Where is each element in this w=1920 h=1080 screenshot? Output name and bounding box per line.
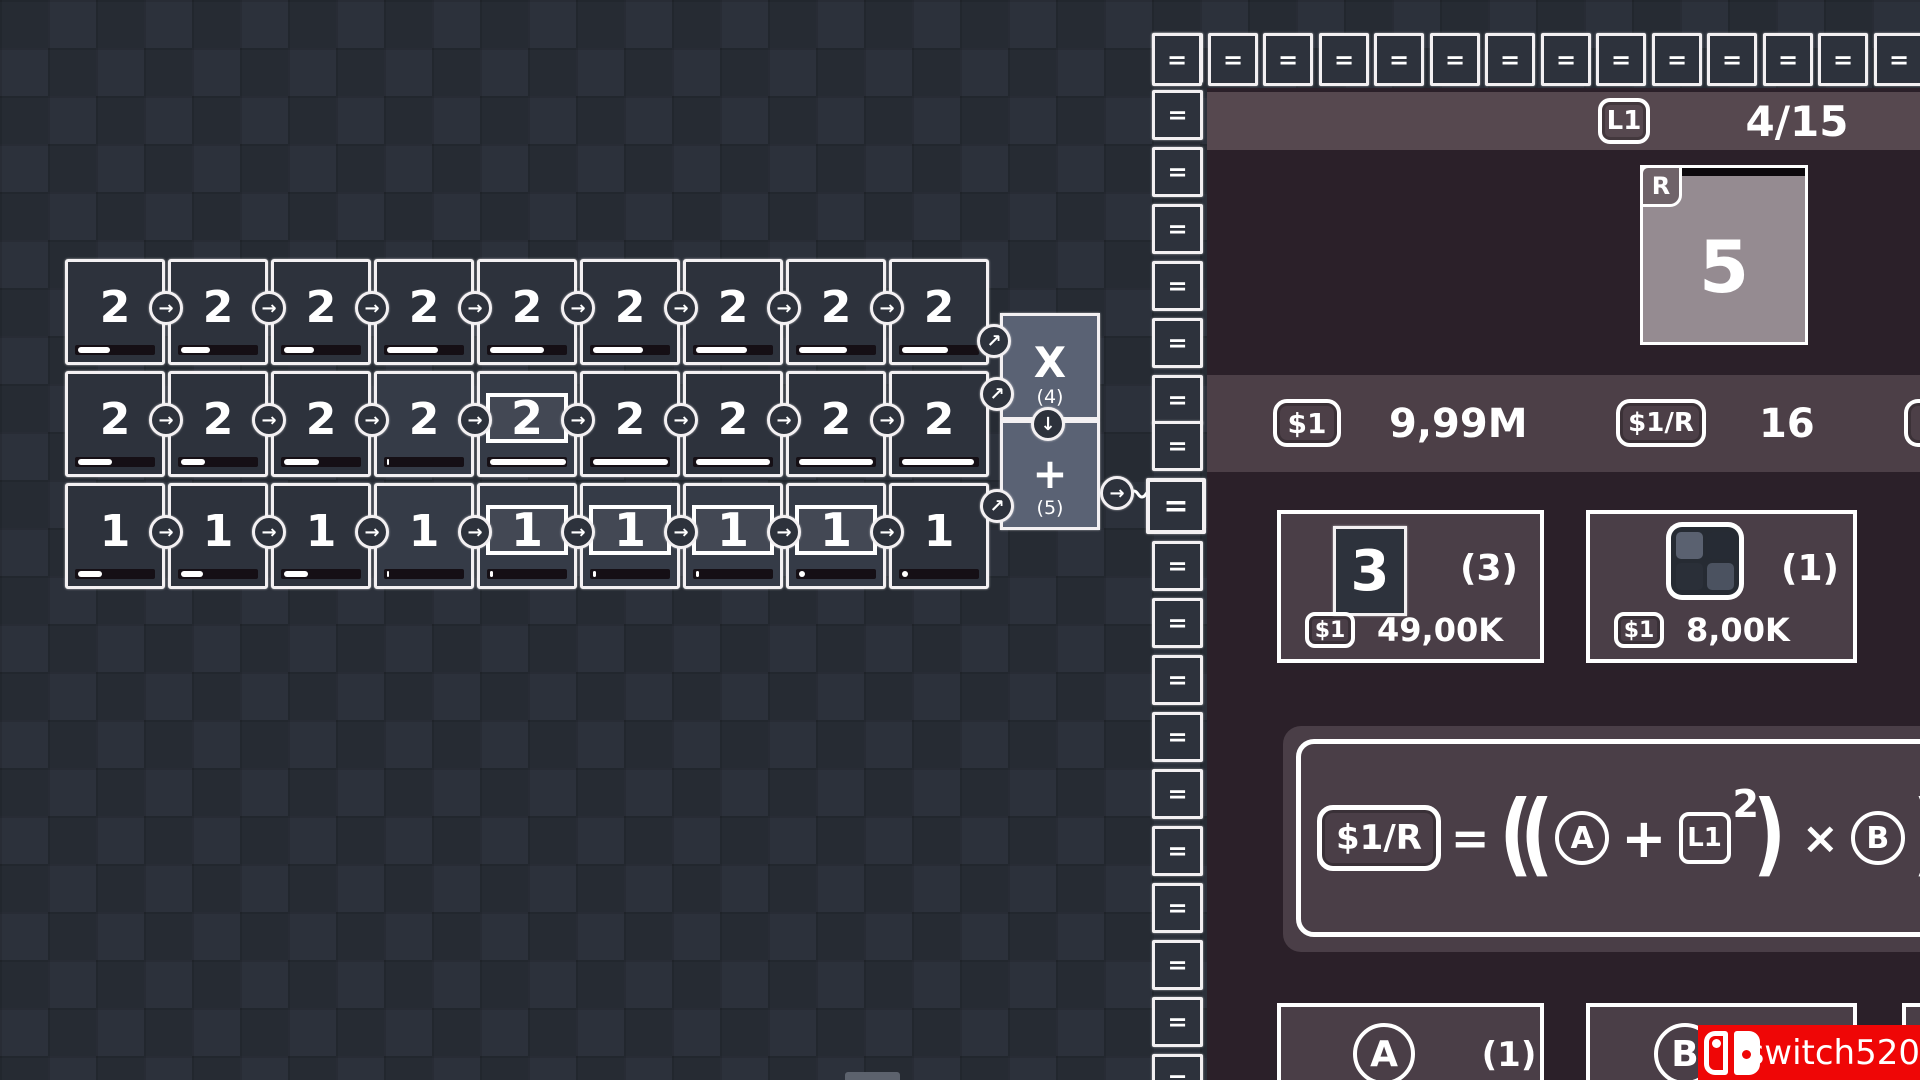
cell-progress-track (75, 457, 155, 467)
arrow-diagonal-connector[interactable]: ↗ (980, 489, 1014, 523)
cell-value: 2 (203, 282, 234, 333)
formula-close-paren: ) (1753, 788, 1790, 878)
arrow-right-connector[interactable]: → (252, 515, 286, 549)
cell-value: 1 (924, 506, 955, 557)
arrow-right-connector[interactable]: → (458, 515, 492, 549)
cell-progress-track (899, 569, 979, 579)
cell-progress-fill (387, 459, 389, 465)
sell-slot[interactable]: = (1152, 421, 1203, 471)
sell-slot[interactable]: = (1152, 598, 1203, 648)
switch-logo-icon (1704, 1031, 1741, 1075)
cell-progress-fill (696, 347, 747, 353)
cell-value: 1 (203, 506, 234, 557)
reward-badge: R (1640, 165, 1682, 207)
cell-progress-track (899, 457, 979, 467)
shop-card-splitter[interactable]: (1) $1 8,00K (1586, 510, 1857, 663)
variable-a-icon: A (1555, 811, 1609, 865)
arrow-right-connector[interactable]: → (458, 291, 492, 325)
cell-value: 2 (512, 282, 543, 333)
multiply-count: (4) (1003, 386, 1097, 408)
upgrade-count: (1) (1459, 1035, 1559, 1075)
cell-progress-track (693, 569, 773, 579)
arrow-right-connector[interactable]: → (767, 291, 801, 325)
sell-slot[interactable]: = (1430, 33, 1480, 86)
cell-value: 2 (274, 386, 368, 452)
arrow-down-connector[interactable]: ↓ (1031, 407, 1065, 441)
cell-progress-track (796, 457, 876, 467)
cell-progress-fill (799, 347, 847, 353)
cell-value: 2 (583, 386, 677, 452)
rate-value: 16 (1759, 375, 1815, 472)
arrow-right-connector[interactable]: → (149, 515, 183, 549)
cell-progress-fill (593, 571, 596, 577)
cell-progress-track (178, 569, 258, 579)
cell-value: 2 (100, 394, 131, 445)
sell-slot[interactable]: = (1263, 33, 1313, 86)
cell-progress-track (796, 569, 876, 579)
sell-slot[interactable]: = (1319, 33, 1369, 86)
grid-cell[interactable]: 2 (889, 371, 989, 477)
reward-value: 5 (1643, 202, 1805, 332)
cell-value: 2 (68, 386, 162, 452)
arrow-right-connector[interactable]: → (355, 515, 389, 549)
cell-progress-fill (490, 459, 566, 465)
price-row: $1 49,00K (1305, 611, 1503, 649)
cell-progress-fill (593, 459, 668, 465)
panel-header-bar: L1 4/15 (1207, 92, 1920, 150)
arrow-right-connector[interactable]: → (664, 515, 698, 549)
cell-value: 1 (892, 498, 986, 564)
game-stage: L1 4/15 R 5 $1 9,99M $1/R 16 3 (3) $1 49… (0, 0, 1920, 1080)
arrow-right-connector[interactable]: → (561, 403, 595, 437)
arrow-right-connector[interactable]: → (767, 403, 801, 437)
cell-selection-box: 2 (486, 393, 568, 443)
formula-result-badge: $1/R (1317, 805, 1441, 871)
cell-progress-track (281, 569, 361, 579)
arrow-diagonal-connector[interactable]: ↗ (977, 324, 1011, 358)
number3-tile: 3 (1333, 526, 1407, 616)
cell-progress-track (384, 569, 464, 579)
cell-value: 2 (377, 274, 471, 340)
arrow-right-connector[interactable]: → (1100, 476, 1134, 510)
watermark-text: switch520 (1747, 1033, 1920, 1073)
cell-progress-fill (902, 571, 908, 577)
formula-close-paren2: ) (1913, 788, 1920, 878)
arrow-right-connector[interactable]: → (870, 291, 904, 325)
arrow-right-connector[interactable]: → (561, 291, 595, 325)
cell-value: 2 (892, 274, 986, 340)
cell-value: 1 (306, 506, 337, 557)
arrow-right-connector[interactable]: → (149, 403, 183, 437)
cell-value: 2 (171, 274, 265, 340)
level-token: L1 (1679, 812, 1731, 864)
cell-value: 2 (718, 282, 749, 333)
cell-progress-fill (696, 571, 699, 577)
sell-slot[interactable]: = (1818, 33, 1868, 86)
cell-value: 1 (511, 503, 543, 557)
cell-progress-track (590, 345, 670, 355)
cell-progress-fill (78, 571, 102, 577)
level-progress-counter: 4/15 (1727, 92, 1867, 150)
cell-progress-track (487, 345, 567, 355)
cell-progress-fill (799, 459, 873, 465)
cell-value: 1 (171, 498, 265, 564)
cell-value: 2 (789, 274, 883, 340)
shop-card-number3[interactable]: 3 (3) $1 49,00K (1277, 510, 1544, 663)
cell-progress-track (487, 457, 567, 467)
cell-value: 2 (718, 394, 749, 445)
cell-progress-track (590, 457, 670, 467)
cell-progress-fill (284, 459, 319, 465)
currency-badge-cut (1904, 399, 1920, 447)
sell-slot[interactable]: = (1485, 33, 1535, 86)
currency-bar: $1 9,99M $1/R 16 (1207, 375, 1920, 472)
cell-value: 1 (100, 506, 131, 557)
sell-slot[interactable]: = (1874, 33, 1920, 86)
cell-value: 2 (306, 394, 337, 445)
price-currency-badge: $1 (1305, 612, 1355, 648)
cell-value: 2 (409, 282, 440, 333)
sell-slot[interactable]: = (1152, 541, 1203, 591)
cell-progress-track (384, 345, 464, 355)
cell-progress-track (178, 457, 258, 467)
arrow-right-connector[interactable]: → (870, 403, 904, 437)
cell-value: 2 (924, 282, 955, 333)
cell-value: 2 (583, 274, 677, 340)
cell-progress-track (487, 569, 567, 579)
cell-progress-fill (181, 459, 205, 465)
cell-value: 2 (203, 394, 234, 445)
cell-progress-fill (387, 571, 389, 577)
sell-slot[interactable]: = (1652, 33, 1702, 86)
sell-slot[interactable]: = (1152, 147, 1203, 197)
arrow-diagonal-connector[interactable]: ↗ (980, 377, 1014, 411)
cell-selection-box: 1 (486, 505, 568, 555)
price-row: $1 8,00K (1614, 611, 1790, 649)
price-value: 49,00K (1377, 611, 1503, 649)
arrow-right-connector[interactable]: → (458, 403, 492, 437)
cell-value: 2 (100, 282, 131, 333)
arrow-right-connector[interactable]: → (252, 403, 286, 437)
money-badge: $1 (1273, 399, 1341, 447)
cell-progress-track (281, 345, 361, 355)
cell-progress-track (590, 569, 670, 579)
cell-value: 2 (924, 394, 955, 445)
upgrade-card-a[interactable]: A (1) (1277, 1003, 1544, 1080)
grid-2x2-icon (1666, 522, 1744, 600)
sell-slot[interactable]: = (1152, 1054, 1203, 1080)
arrow-right-connector[interactable]: → (355, 403, 389, 437)
formula-times: × (1802, 813, 1839, 864)
cell-value: 1 (377, 498, 471, 564)
cell-value: 1 (274, 498, 368, 564)
multiply-operator-block[interactable]: X(4) (1000, 313, 1100, 420)
cell-value: 1 (717, 503, 749, 557)
cell-progress-fill (799, 571, 805, 577)
cell-progress-fill (284, 347, 314, 353)
sell-slot[interactable]: = (1152, 90, 1203, 140)
sell-slot[interactable]: = (1374, 33, 1424, 86)
cell-progress-track (384, 457, 464, 467)
arrow-right-connector[interactable]: → (561, 515, 595, 549)
cell-progress-track (796, 345, 876, 355)
price-value: 8,00K (1686, 611, 1790, 649)
cell-value: 2 (409, 394, 440, 445)
cell-value: 2 (274, 274, 368, 340)
level-badge: L1 (1598, 98, 1650, 144)
cell-value: 2 (306, 282, 337, 333)
sell-slot[interactable]: = (1152, 204, 1203, 254)
sell-slot[interactable]: = (1707, 33, 1757, 86)
cell-progress-fill (181, 571, 203, 577)
cell-value: 2 (511, 391, 543, 445)
arrow-right-connector[interactable]: → (767, 515, 801, 549)
cell-progress-track (75, 345, 155, 355)
cell-value: 2 (789, 386, 883, 452)
money-value: 9,99M (1389, 375, 1528, 472)
cell-progress-track (899, 345, 979, 355)
cell-value: 2 (171, 386, 265, 452)
sell-slot[interactable]: = (1152, 375, 1203, 425)
cell-progress-fill (593, 347, 643, 353)
sell-slot[interactable]: = (1152, 940, 1203, 990)
cell-progress-fill (387, 347, 438, 353)
sell-slot[interactable]: = (1763, 33, 1813, 86)
sell-slot[interactable]: = (1152, 261, 1203, 311)
cell-value: 2 (686, 386, 780, 452)
cell-value: 2 (377, 386, 471, 452)
arrow-right-connector[interactable]: → (355, 291, 389, 325)
sell-slot[interactable]: = (1152, 318, 1203, 368)
sell-slot[interactable]: = (1152, 655, 1203, 705)
cell-value: 2 (615, 394, 646, 445)
rate-badge: $1/R (1616, 399, 1706, 447)
cell-progress-track (281, 457, 361, 467)
cell-value: 2 (686, 274, 780, 340)
cell-progress-fill (490, 571, 493, 577)
cell-progress-fill (696, 459, 770, 465)
cell-value: 2 (480, 274, 574, 340)
sell-slot[interactable]: = (1541, 33, 1591, 86)
cell-progress-fill (490, 347, 544, 353)
formula-open-parens: (( (1499, 788, 1555, 878)
sell-slot[interactable]: = (1152, 712, 1203, 762)
cell-progress-fill (78, 459, 112, 465)
shop-card-count: (1) (1760, 548, 1860, 589)
cell-selection-box: 1 (589, 505, 671, 555)
sell-slot[interactable]: = (1152, 883, 1203, 933)
cell-value: 1 (409, 506, 440, 557)
cell-progress-track (693, 345, 773, 355)
variable-a-icon: A (1353, 1023, 1415, 1080)
add-symbol: + (1003, 453, 1097, 495)
watermark: switch520 (1698, 1025, 1920, 1080)
sell-slot[interactable]: = (1152, 997, 1203, 1047)
cell-progress-fill (181, 347, 210, 353)
cell-value: 2 (892, 386, 986, 452)
variable-b-icon: B (1851, 811, 1905, 865)
cell-value: 1 (68, 498, 162, 564)
formula-equals: = (1451, 811, 1490, 865)
cell-selection-box: 1 (795, 505, 877, 555)
cell-value: 1 (614, 503, 646, 557)
cell-progress-fill (78, 347, 110, 353)
grid-cell[interactable]: 1 (889, 483, 989, 589)
sell-slot[interactable]: = (1208, 33, 1258, 86)
price-currency-badge: $1 (1614, 612, 1664, 648)
shop-card-count: (3) (1439, 548, 1539, 589)
bottom-notch (845, 1072, 900, 1080)
sell-slot[interactable]: = (1596, 33, 1646, 86)
cell-progress-fill (284, 571, 308, 577)
sell-slot-connected[interactable]: = (1146, 478, 1206, 534)
arrow-right-connector[interactable]: → (664, 291, 698, 325)
sell-slot[interactable]: = (1152, 826, 1203, 876)
cell-progress-track (75, 569, 155, 579)
cell-value: 1 (820, 503, 852, 557)
cell-value: 2 (68, 274, 162, 340)
cell-selection-box: 1 (692, 505, 774, 555)
add-count: (5) (1003, 497, 1097, 519)
cell-progress-fill (902, 459, 974, 465)
sell-slot[interactable]: = (1152, 769, 1203, 819)
arrow-right-connector[interactable]: → (870, 515, 904, 549)
arrow-right-connector[interactable]: → (252, 291, 286, 325)
reward-card[interactable]: R 5 (1640, 165, 1808, 345)
multiply-symbol: X (1003, 342, 1097, 384)
arrow-right-connector[interactable]: → (149, 291, 183, 325)
arrow-right-connector[interactable]: → (664, 403, 698, 437)
sell-slot[interactable]: = (1152, 33, 1202, 86)
formula-plus: + (1621, 807, 1666, 870)
cell-value: 2 (821, 282, 852, 333)
grid-cell[interactable]: 2 (889, 259, 989, 365)
formula-box: $1/R = (( A + L1 2 ) × B ) (1296, 739, 1920, 937)
cell-value: 2 (821, 394, 852, 445)
cell-progress-track (693, 457, 773, 467)
cell-value: 2 (615, 282, 646, 333)
cell-progress-fill (902, 347, 948, 353)
cell-progress-track (178, 345, 258, 355)
